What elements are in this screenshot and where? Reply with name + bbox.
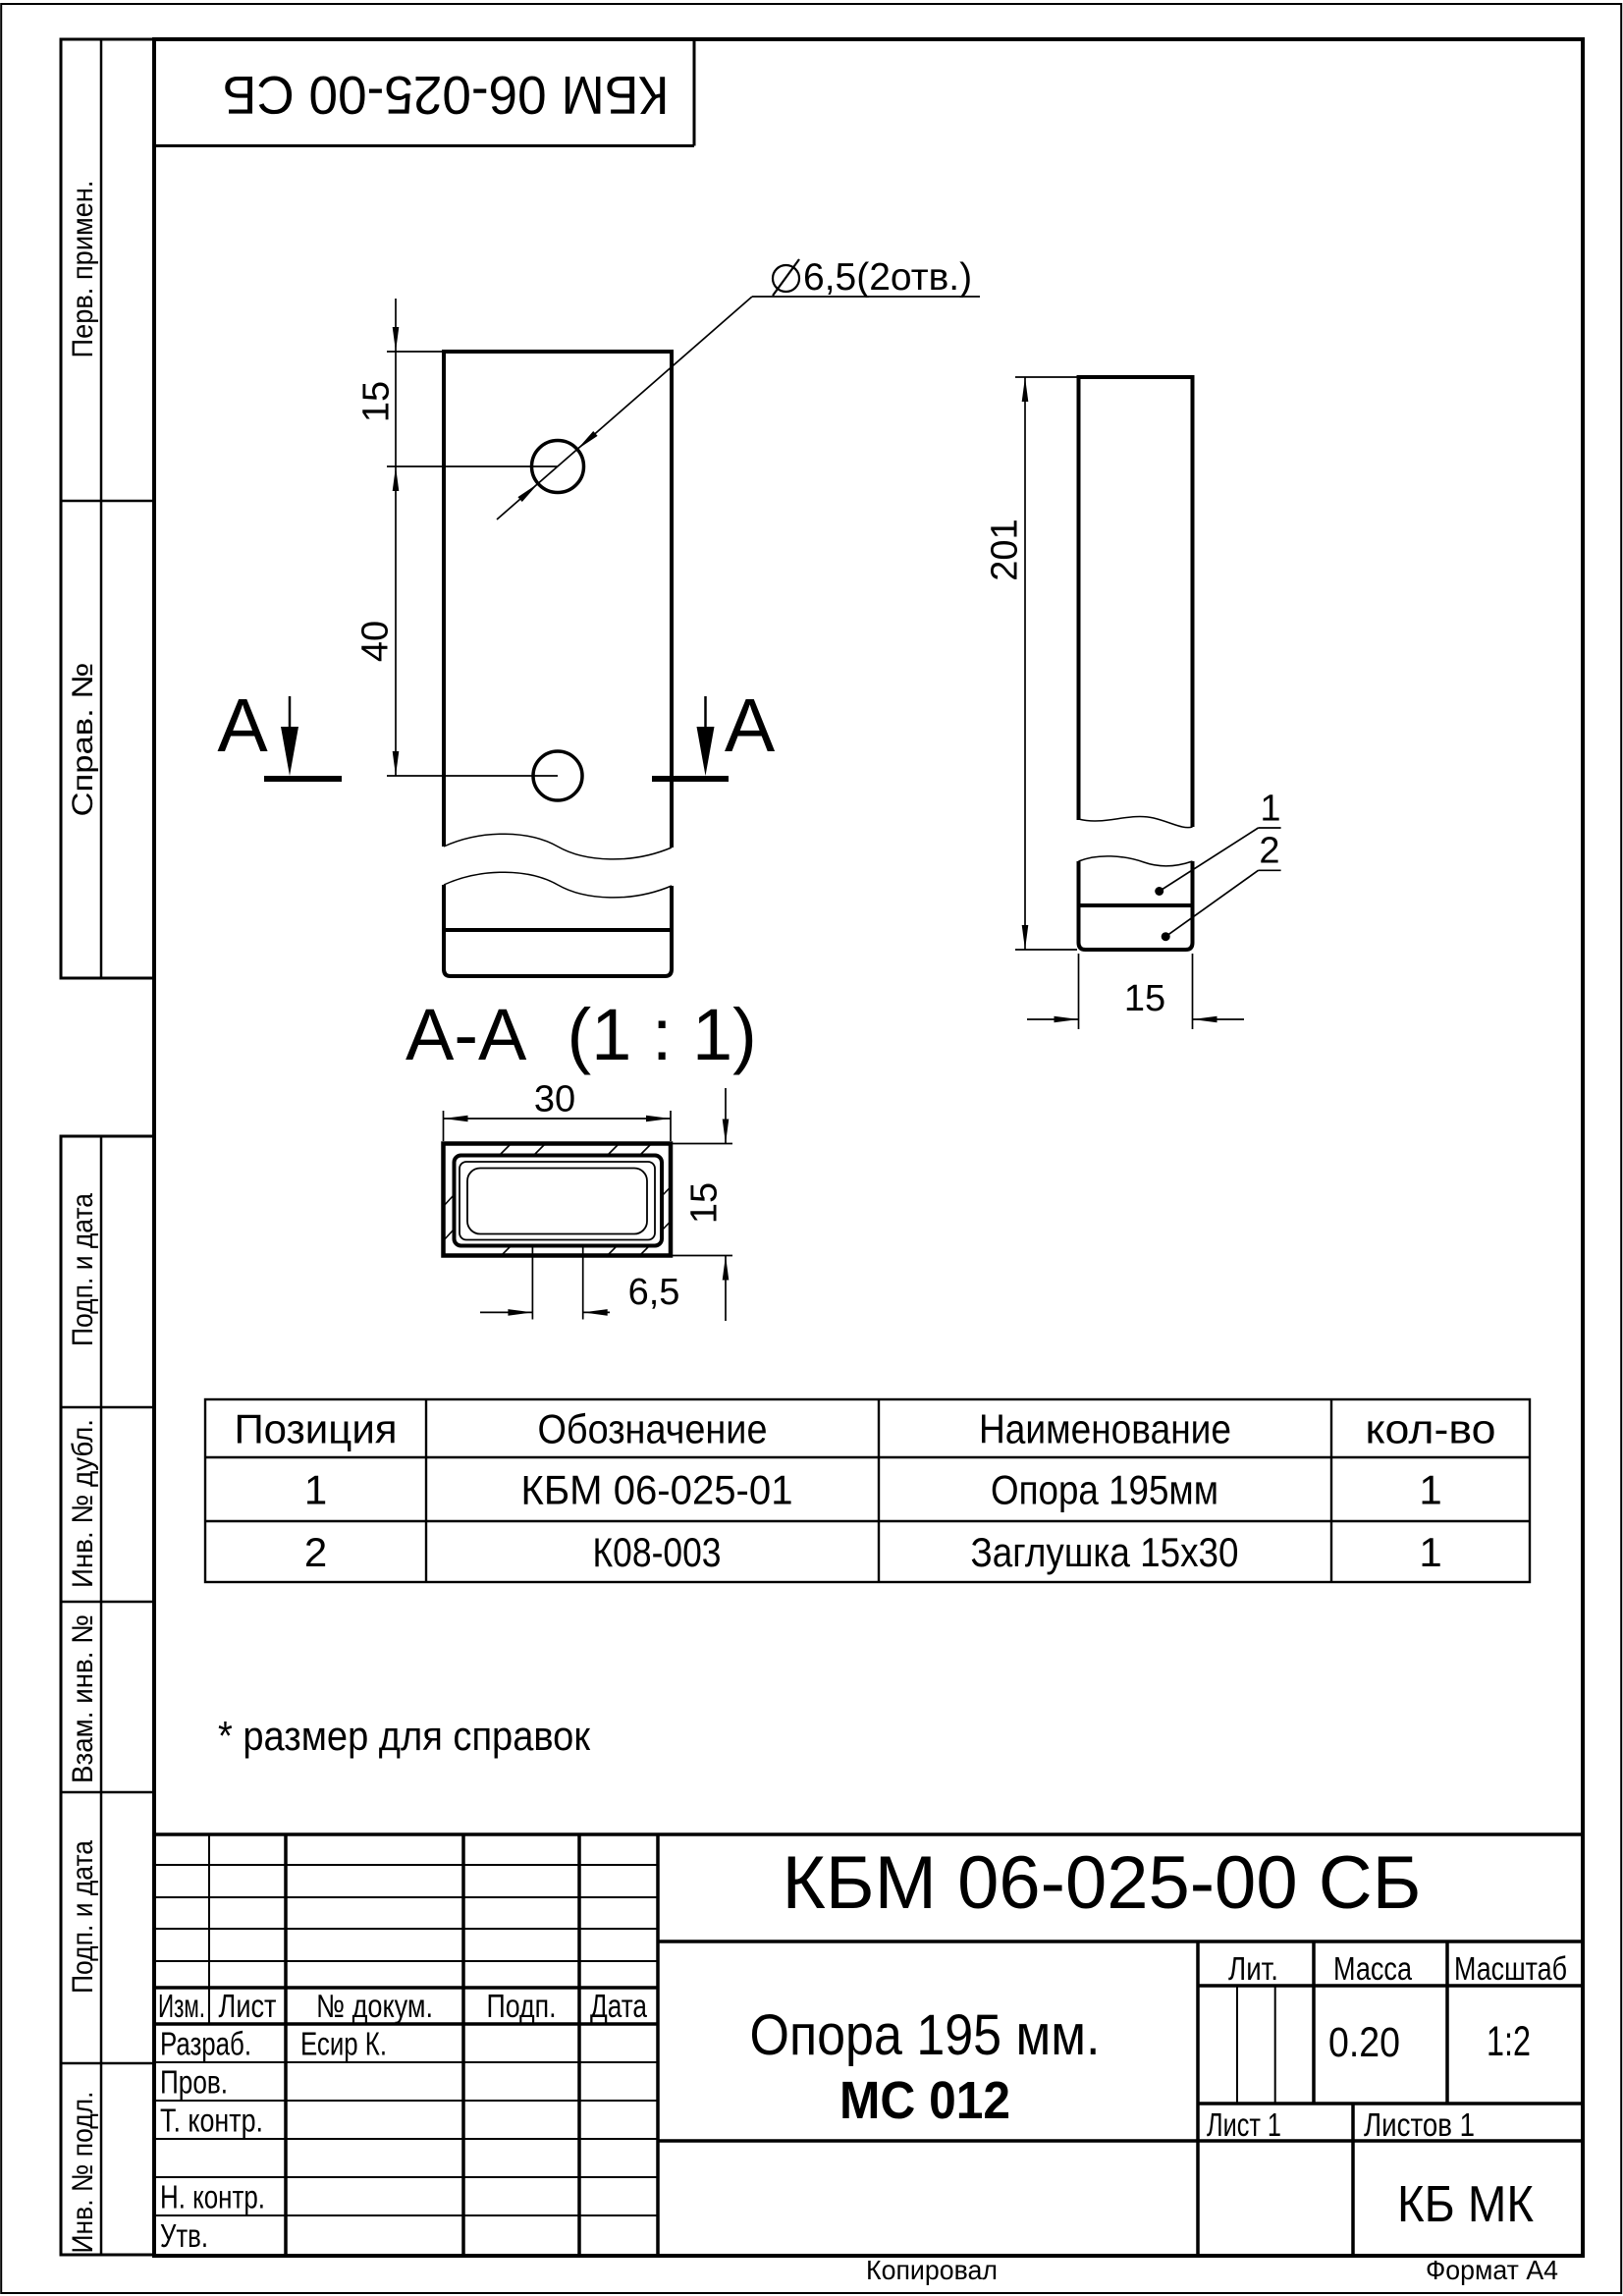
svg-text:Подп.: Подп. (487, 1988, 557, 2024)
svg-text:Подп. и дата: Подп. и дата (67, 1840, 99, 1994)
svg-text:A: A (217, 683, 268, 768)
svg-text:Есир К.: Есир К. (300, 2026, 387, 2062)
svg-text:201: 201 (985, 519, 1026, 580)
svg-text:КБМ 06-025-01: КБМ 06-025-01 (521, 1467, 793, 1513)
svg-text:* размер для справок: * размер для справок (218, 1713, 591, 1759)
svg-text:МС 012: МС 012 (839, 2071, 1010, 2130)
svg-text:1: 1 (1419, 1529, 1441, 1575)
svg-text:Опора 195 мм.: Опора 195 мм. (750, 2003, 1101, 2067)
svg-text:15: 15 (356, 381, 398, 422)
svg-text:Наименование: Наименование (979, 1406, 1231, 1452)
svg-text:Масса: Масса (1333, 1950, 1413, 1987)
svg-text:30: 30 (534, 1079, 575, 1121)
svg-text:2: 2 (1259, 831, 1279, 872)
svg-text:КБМ 06-025-00 СБ: КБМ 06-025-00 СБ (783, 1841, 1422, 1925)
svg-text:Справ. №: Справ. № (67, 663, 99, 817)
svg-text:Подп. и дата: Подп. и дата (67, 1193, 99, 1346)
svg-text:0.20: 0.20 (1328, 2019, 1400, 2066)
svg-text:A-A (1 : 1): A-A (1 : 1) (406, 994, 757, 1075)
svg-text:Инв. № дубл.: Инв. № дубл. (67, 1419, 99, 1588)
svg-text:Дата: Дата (590, 1988, 648, 2024)
svg-text:15: 15 (1124, 978, 1165, 1019)
svg-text:Т. контр.: Т. контр. (160, 2103, 263, 2139)
svg-text:Копировал: Копировал (866, 2255, 998, 2285)
svg-text:Обозначение: Обозначение (538, 1406, 768, 1452)
svg-text:40: 40 (355, 621, 397, 662)
svg-text:Лист: Лист (219, 1988, 277, 2024)
svg-text:Позиция: Позиция (234, 1406, 397, 1452)
svg-text:Изм.: Изм. (158, 1988, 205, 2024)
svg-text:Инв. № подл.: Инв. № подл. (67, 2092, 99, 2254)
svg-text:1: 1 (304, 1467, 327, 1513)
svg-text:КБ МК: КБ МК (1397, 2176, 1534, 2233)
svg-text:КБМ 06-025-00 СБ: КБМ 06-025-00 СБ (223, 65, 670, 126)
svg-text:Н. контр.: Н. контр. (160, 2179, 265, 2215)
svg-text:15: 15 (684, 1182, 726, 1224)
svg-text:кол-во: кол-во (1366, 1406, 1496, 1452)
svg-text:Перв. примен.: Перв. примен. (67, 181, 99, 358)
svg-text:Лит.: Лит. (1228, 1950, 1278, 1987)
svg-text:Заглушка 15х30: Заглушка 15х30 (971, 1529, 1239, 1575)
svg-text:Листов 1: Листов 1 (1364, 2106, 1475, 2143)
svg-text:№ докум.: № докум. (316, 1988, 433, 2024)
svg-text:Опора 195мм: Опора 195мм (991, 1467, 1218, 1513)
svg-text:Утв.: Утв. (160, 2217, 208, 2254)
svg-text:1: 1 (1419, 1467, 1441, 1513)
svg-text:1: 1 (1260, 789, 1280, 830)
svg-text:Разраб.: Разраб. (160, 2026, 251, 2062)
svg-text:Пров.: Пров. (160, 2064, 228, 2101)
svg-text:Масштаб: Масштаб (1454, 1950, 1567, 1987)
svg-text:К08-003: К08-003 (593, 1529, 722, 1575)
svg-text:6,5: 6,5 (628, 1272, 680, 1313)
svg-text:A: A (725, 683, 776, 768)
svg-text:1:2: 1:2 (1487, 2018, 1531, 2065)
svg-text:Формат А4: Формат А4 (1426, 2255, 1558, 2285)
svg-text:Лист 1: Лист 1 (1207, 2106, 1281, 2143)
svg-text:Взам. инв. №: Взам. инв. № (67, 1614, 99, 1783)
svg-text:2: 2 (304, 1529, 327, 1575)
svg-text:6,5(2отв.): 6,5(2отв.) (803, 256, 972, 299)
